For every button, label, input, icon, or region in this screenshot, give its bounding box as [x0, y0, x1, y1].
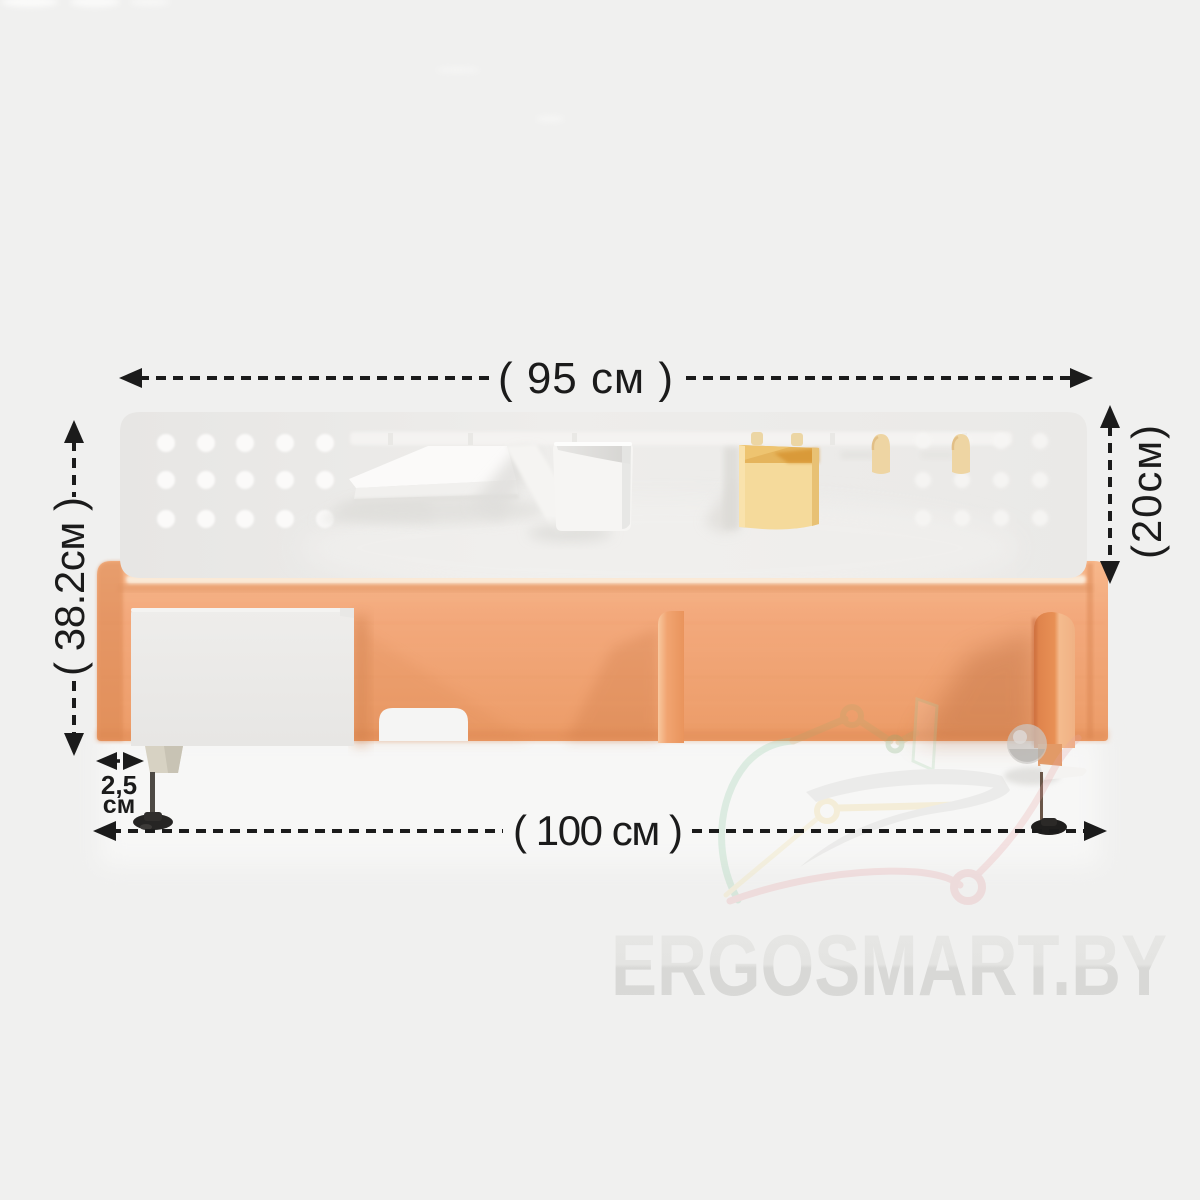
svg-text:( 38.2см ): ( 38.2см ) — [46, 497, 93, 676]
svg-text:( 100 см ): ( 100 см ) — [513, 807, 683, 854]
svg-text:(20см): (20см) — [1123, 425, 1170, 559]
svg-text:ERGOSMART.BY: ERGOSMART.BY — [611, 918, 1167, 1014]
svg-text:( 95 см ): ( 95 см ) — [498, 354, 673, 403]
svg-text:см: см — [103, 791, 135, 819]
